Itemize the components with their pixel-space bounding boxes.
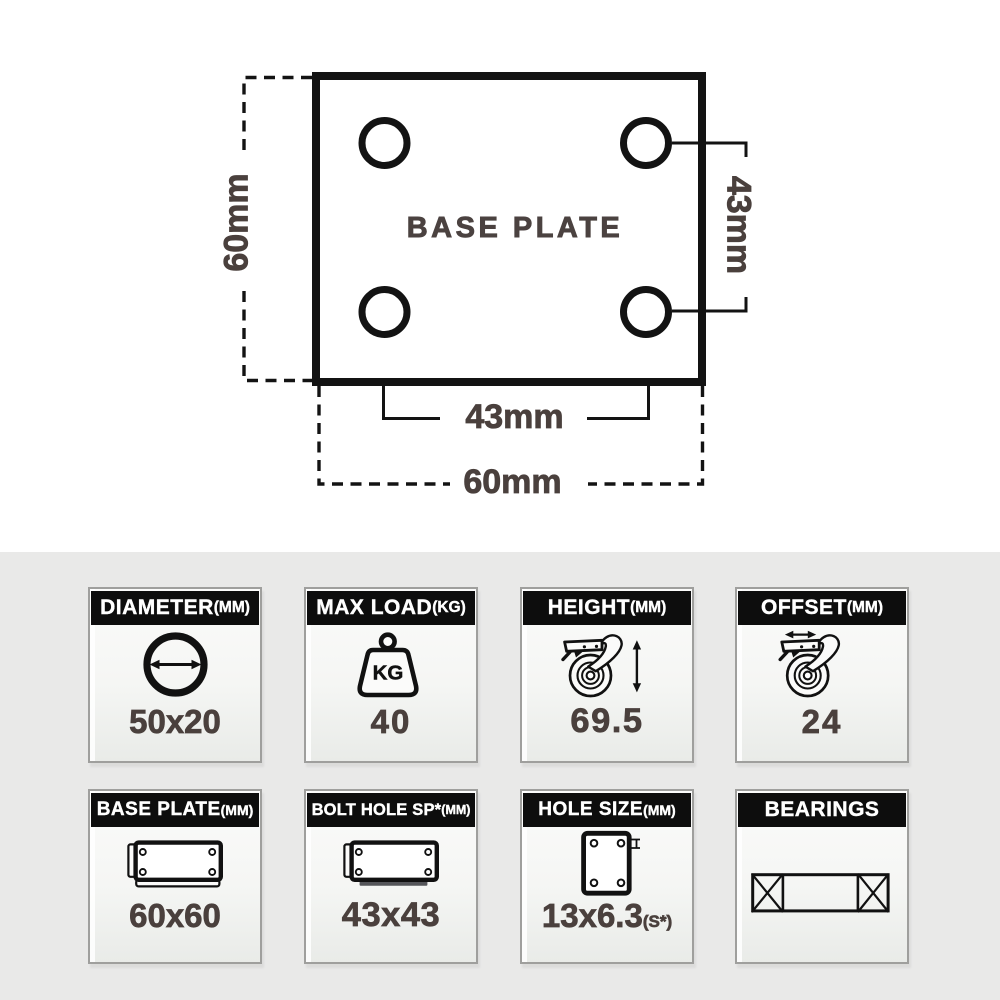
svg-text:60mm: 60mm — [463, 463, 561, 501]
svg-text:BASE PLATE: BASE PLATE — [407, 212, 624, 244]
svg-text:KG: KG — [373, 662, 404, 685]
svg-text:43mm: 43mm — [720, 176, 758, 274]
svg-text:43mm: 43mm — [465, 398, 563, 436]
svg-text:60mm: 60mm — [218, 173, 256, 271]
